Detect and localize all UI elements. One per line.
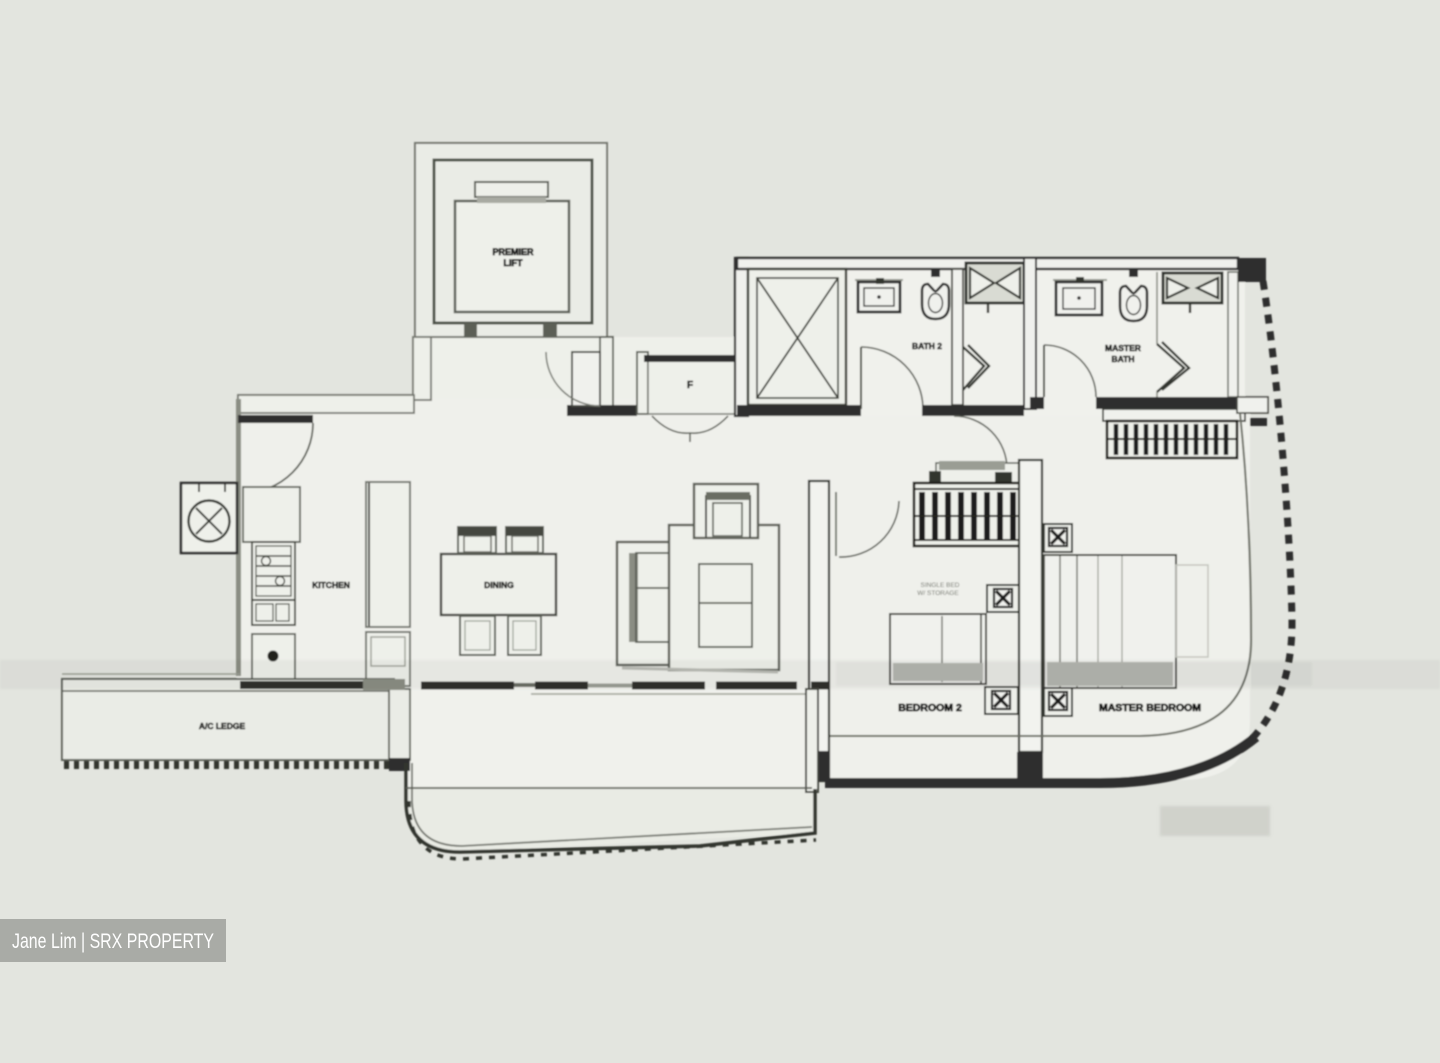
svg-text:KITCHEN: KITCHEN	[312, 580, 350, 590]
svg-text:PREMIER: PREMIER	[492, 247, 534, 257]
svg-text:BATH: BATH	[1112, 354, 1135, 364]
svg-text:MASTER BEDROOM: MASTER BEDROOM	[1099, 702, 1201, 714]
svg-text:BATH 2: BATH 2	[912, 341, 942, 351]
svg-text:LIFT: LIFT	[504, 258, 523, 268]
svg-text:Jane Lim | SRX PROPERTY: Jane Lim | SRX PROPERTY	[12, 930, 214, 953]
svg-text:F: F	[687, 380, 693, 391]
svg-text:A/C LEDGE: A/C LEDGE	[199, 721, 246, 731]
svg-text:SINGLE BED: SINGLE BED	[920, 582, 959, 589]
svg-text:W/ STORAGE: W/ STORAGE	[917, 590, 959, 597]
svg-text:MASTER: MASTER	[1105, 343, 1141, 353]
svg-text:DINING: DINING	[484, 580, 514, 590]
svg-text:BEDROOM 2: BEDROOM 2	[898, 702, 962, 714]
